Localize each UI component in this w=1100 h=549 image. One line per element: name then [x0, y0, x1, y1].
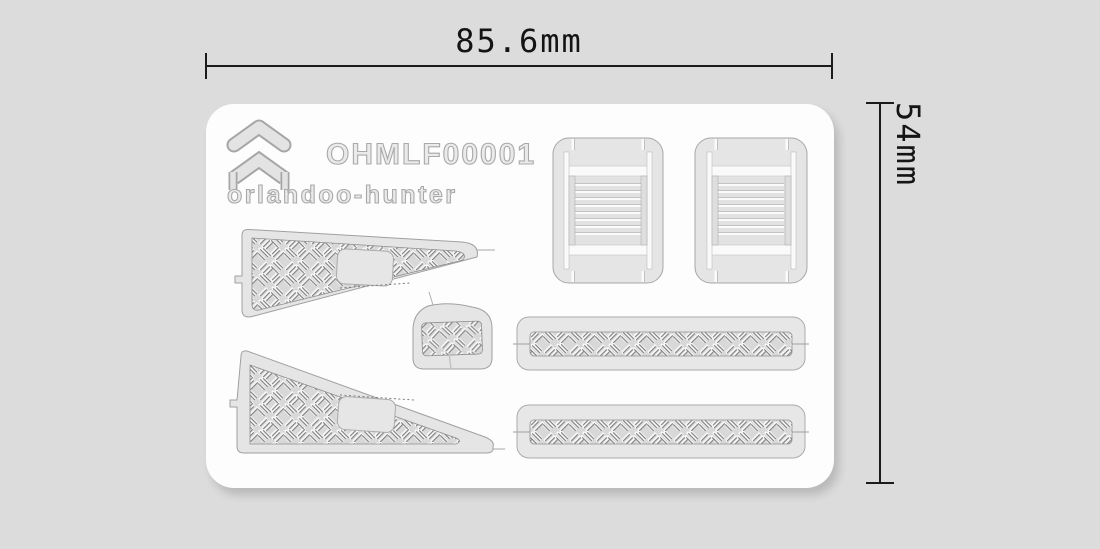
height-dimension-line	[879, 102, 881, 484]
product-code: OHMLF00001	[326, 138, 536, 172]
width-dimension-line	[205, 65, 833, 67]
tread-plate-bracket-small	[413, 292, 492, 369]
brand-name: orlandoo-hunter	[227, 181, 458, 210]
width-dimension-label: 85.6mm	[205, 22, 833, 60]
tread-plate-strip-lower	[513, 405, 809, 458]
etch-sheet-card: OHMLF00001 orlandoo-hunter	[206, 104, 834, 488]
tread-plate-strip-upper	[513, 317, 809, 370]
louver-panel-right	[695, 138, 807, 283]
height-dimension-label: 54mm	[889, 102, 927, 484]
product-photo: 85.6mm 54mm	[0, 0, 1100, 549]
louver-panel-left	[553, 138, 663, 283]
